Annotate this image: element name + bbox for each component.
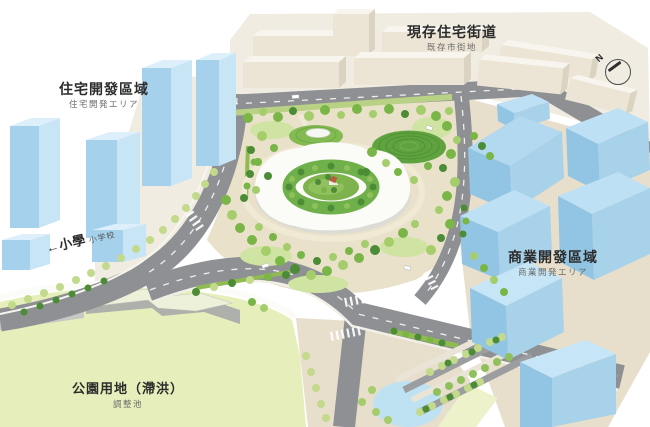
- compass-north-label: N: [593, 52, 605, 64]
- label-subtitle: 小学校: [88, 230, 116, 245]
- site-model-illustration: [0, 0, 650, 427]
- compass: N: [596, 52, 638, 90]
